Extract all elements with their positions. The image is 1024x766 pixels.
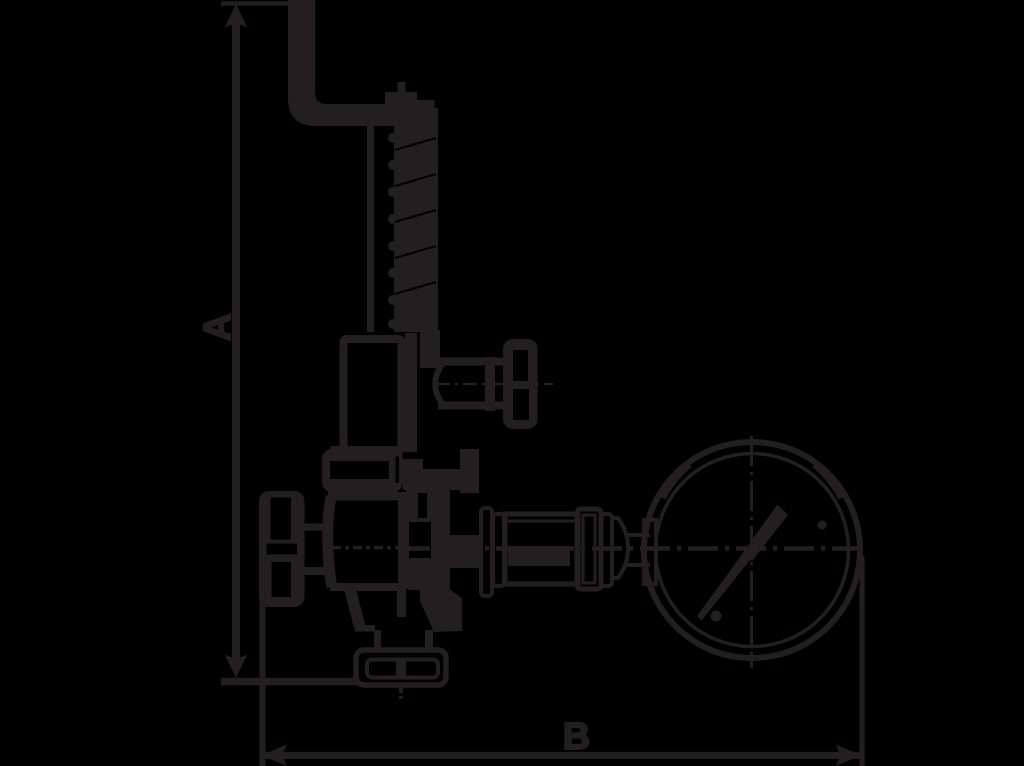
svg-text:A: A bbox=[197, 314, 239, 341]
svg-text:B: B bbox=[563, 716, 590, 758]
